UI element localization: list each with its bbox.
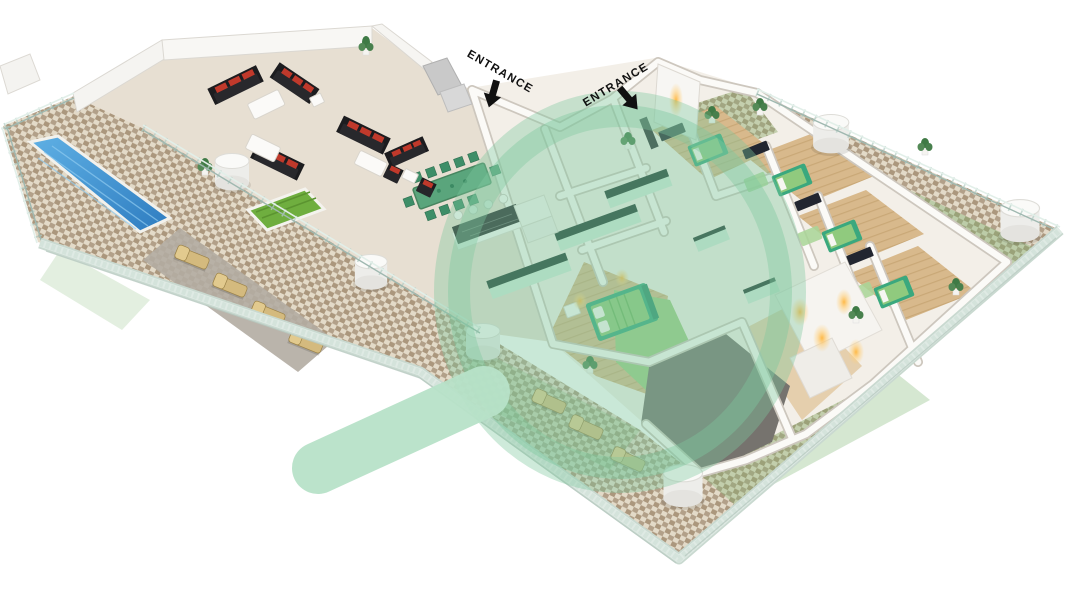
closet-light — [813, 324, 831, 352]
closet-light — [848, 339, 864, 365]
floor-plan-image: ENTRANCE ENTRANCE — [0, 0, 1065, 600]
closet-light — [836, 289, 852, 315]
plant — [918, 138, 933, 155]
magnifier-handle — [318, 392, 484, 468]
